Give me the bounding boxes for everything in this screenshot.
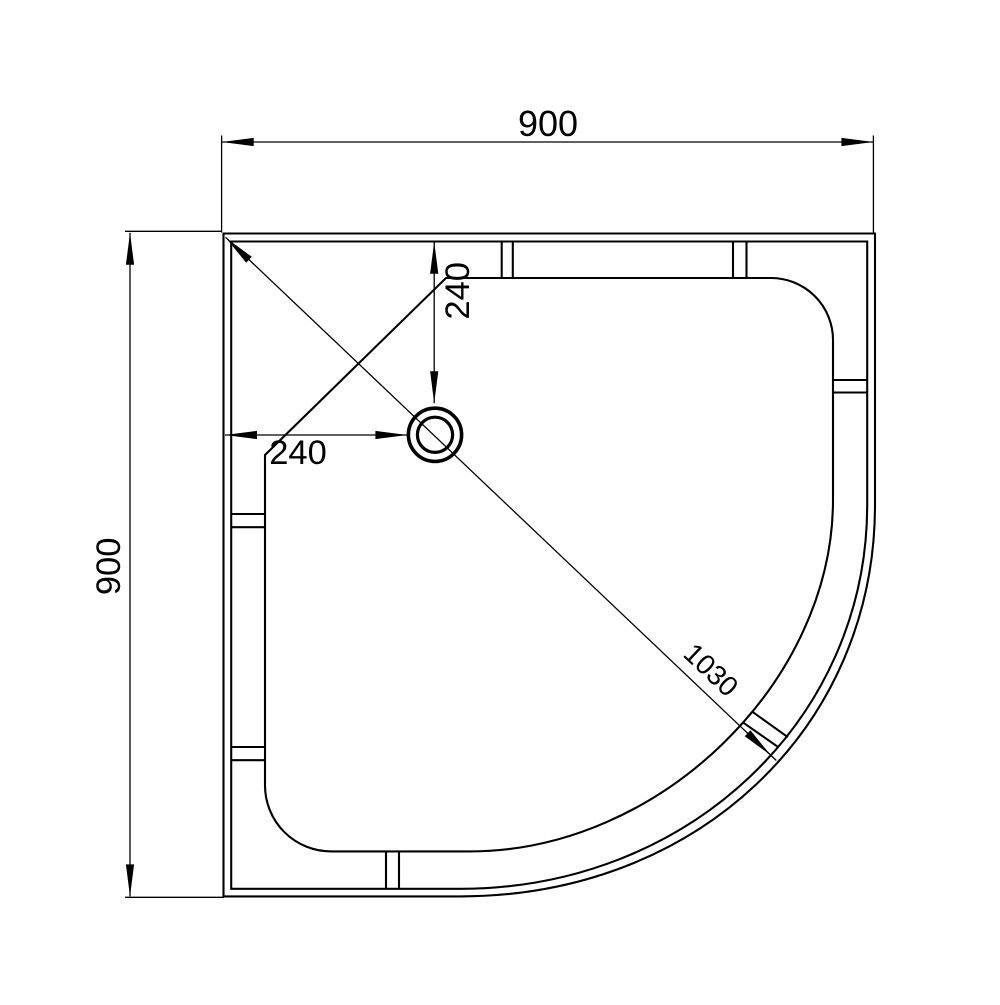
- svg-text:900: 900: [90, 538, 128, 596]
- svg-text:240: 240: [439, 262, 477, 320]
- svg-text:900: 900: [518, 103, 578, 144]
- svg-text:240: 240: [269, 434, 327, 472]
